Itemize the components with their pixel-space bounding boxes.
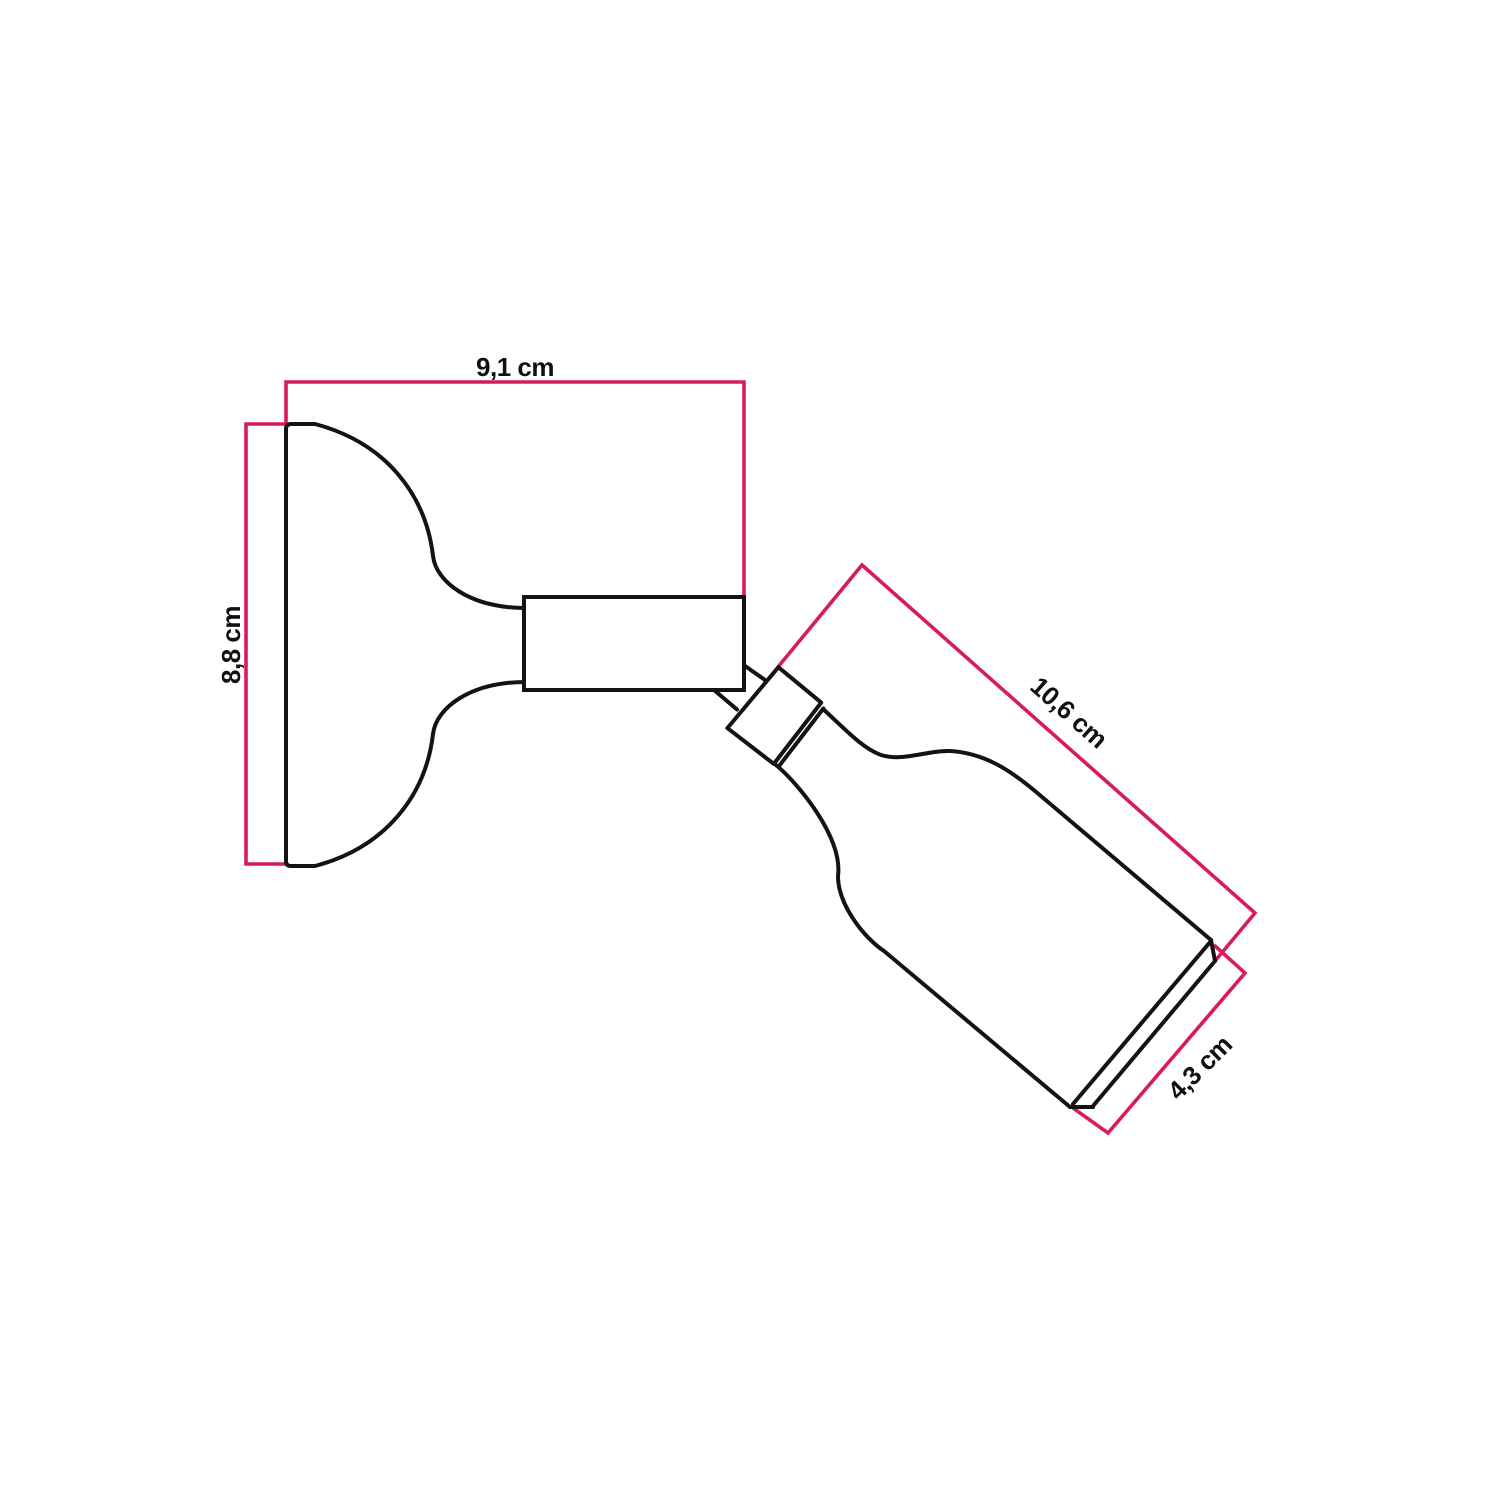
svg-text:8,8 cm: 8,8 cm	[216, 606, 246, 684]
svg-text:9,1 cm: 9,1 cm	[476, 352, 554, 382]
